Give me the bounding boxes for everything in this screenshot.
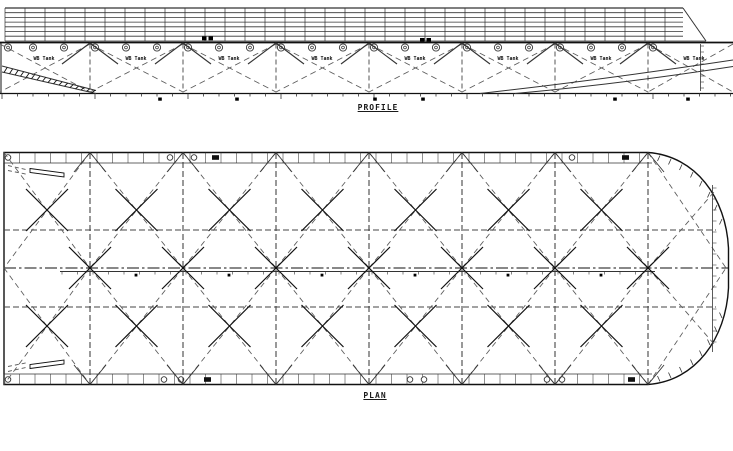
station-marker	[373, 98, 377, 101]
vent-circle	[153, 44, 160, 51]
mooring-fitting-circle	[167, 155, 173, 161]
wb-tank-label: WB Tank	[404, 56, 425, 62]
deck-fitting	[204, 377, 211, 382]
mooring-fitting-circle	[559, 377, 565, 383]
station-marker	[235, 98, 239, 101]
station-marker	[686, 98, 690, 101]
vent-circle	[29, 44, 36, 51]
station-marker	[421, 98, 425, 101]
bow-rake-lines	[480, 44, 733, 94]
wb-tank-label: WB Tank	[590, 56, 611, 62]
vent-circle	[525, 44, 532, 51]
profile-cargo-grid	[5, 8, 706, 41]
station-marker	[158, 98, 162, 101]
drawing-canvas: WB TankWB TankWB TankWB TankWB TankWB Ta…	[0, 0, 733, 451]
vent-circle	[308, 44, 315, 51]
profile-baseline-scale	[0, 94, 733, 101]
vent-circle	[122, 44, 129, 51]
mooring-fitting-circle	[191, 155, 197, 161]
plan-centerline	[4, 230, 728, 307]
wb-tank-label: WB Tank	[33, 56, 54, 62]
wb-tank-label: WB Tank	[311, 56, 332, 62]
deck-fitting	[420, 38, 425, 42]
mooring-fitting-circle	[407, 377, 413, 383]
vent-circle	[339, 44, 346, 51]
deck-fitting	[427, 38, 432, 42]
mooring-fitting-circle	[161, 377, 167, 383]
deck-fitting	[628, 377, 635, 382]
station-marker	[613, 98, 617, 101]
deck-fitting	[209, 37, 214, 41]
profile-bulkheads	[90, 44, 648, 93]
vent-circle	[587, 44, 594, 51]
station-marker	[321, 274, 324, 277]
vent-circle	[246, 44, 253, 51]
vent-circle	[60, 44, 67, 51]
station-marker	[135, 274, 138, 277]
wb-tank-label: WB Tank	[497, 56, 518, 62]
wb-tank-label: WB Tank	[125, 56, 146, 62]
towing-bracket	[30, 169, 64, 178]
profile-caption: PROFILE	[358, 103, 399, 112]
station-marker	[414, 274, 417, 277]
wb-tank-label: WB Tank	[218, 56, 239, 62]
deck-fitting	[622, 155, 629, 160]
vent-circle	[618, 44, 625, 51]
wb-tank-label: WB Tank	[683, 56, 704, 62]
plan-caption: PLAN	[363, 391, 386, 400]
plan-station-scale	[60, 272, 655, 277]
ship-arrangement-drawing: WB TankWB TankWB TankWB TankWB TankWB Ta…	[0, 0, 733, 451]
mooring-fitting-circle	[421, 377, 427, 383]
deck-fitting	[202, 37, 207, 41]
station-marker	[507, 274, 510, 277]
vent-circle	[215, 44, 222, 51]
towing-bracket	[30, 360, 64, 369]
vent-circle	[401, 44, 408, 51]
deck-fitting	[212, 155, 219, 160]
station-marker	[600, 274, 603, 277]
vent-circle	[494, 44, 501, 51]
mooring-fitting-circle	[569, 155, 575, 161]
vent-circle	[432, 44, 439, 51]
station-marker	[228, 274, 231, 277]
